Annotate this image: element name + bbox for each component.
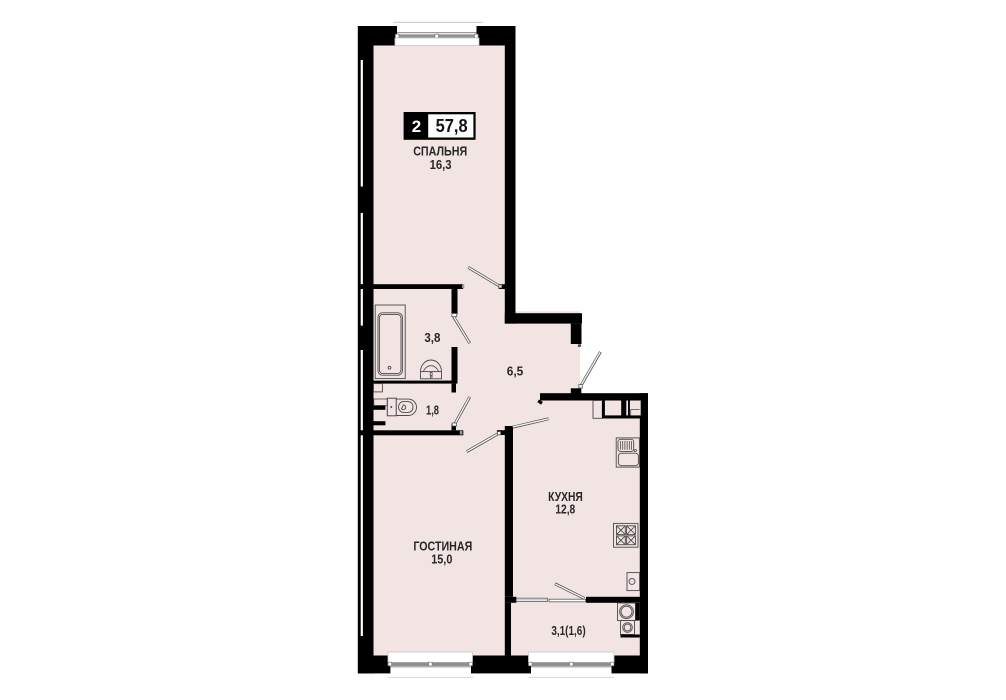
svg-text:3,8: 3,8 bbox=[424, 331, 440, 345]
svg-text:12,8: 12,8 bbox=[555, 502, 575, 517]
svg-text:6,5: 6,5 bbox=[507, 364, 524, 378]
svg-text:15,0: 15,0 bbox=[431, 551, 452, 566]
svg-text:3,1(1,6): 3,1(1,6) bbox=[551, 624, 585, 638]
svg-text:1,8: 1,8 bbox=[426, 404, 439, 418]
svg-text:16,3: 16,3 bbox=[430, 157, 452, 172]
svg-text:СПАЛЬНЯ: СПАЛЬНЯ bbox=[413, 143, 467, 158]
svg-text:2: 2 bbox=[412, 117, 421, 136]
svg-text:57,8: 57,8 bbox=[436, 116, 468, 136]
